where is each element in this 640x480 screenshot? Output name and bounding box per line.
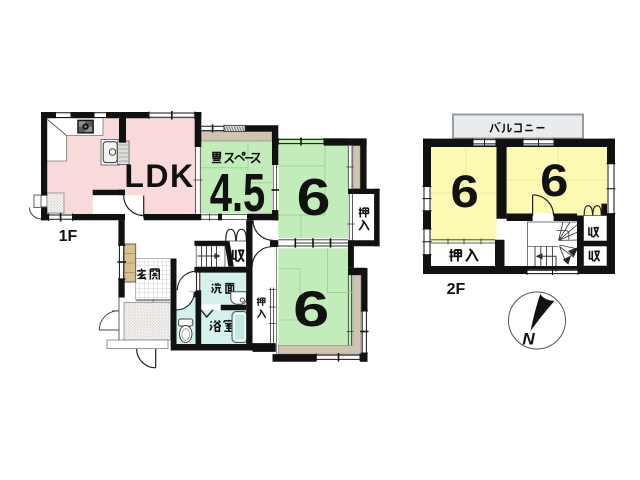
svg-text:6: 6 bbox=[293, 282, 329, 337]
svg-text:1F: 1F bbox=[59, 228, 78, 245]
svg-text:N: N bbox=[522, 330, 535, 349]
svg-text:6: 6 bbox=[297, 168, 331, 226]
svg-text:2F: 2F bbox=[447, 281, 466, 298]
svg-text:LDK: LDK bbox=[124, 158, 194, 194]
svg-text:6: 6 bbox=[450, 168, 478, 218]
